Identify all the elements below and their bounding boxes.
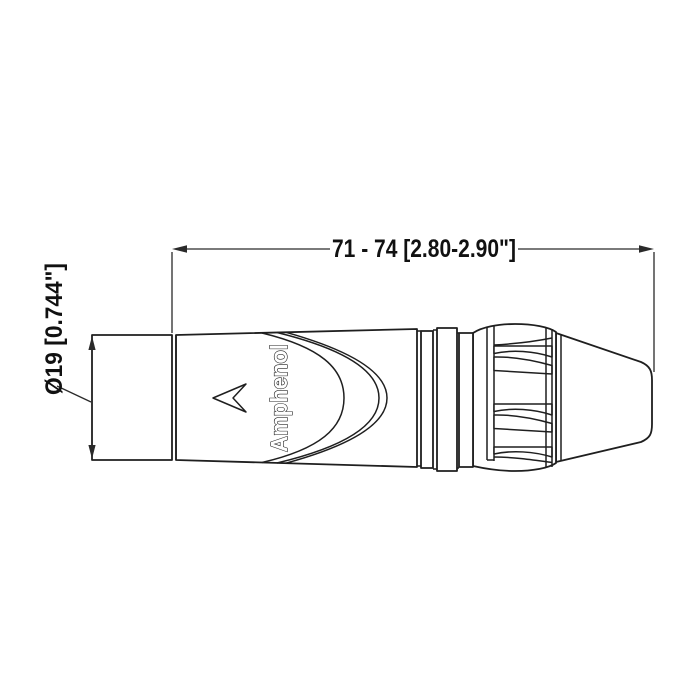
boot-collar xyxy=(459,333,473,467)
diameter-dimension: Ø19 [0.744"] xyxy=(41,263,96,459)
main-shell-body xyxy=(176,329,417,467)
brand-logo-text: Amphenol xyxy=(266,344,292,452)
length-arrowhead-left xyxy=(172,245,187,253)
connector-technical-drawing: Amphenol 71 - 74 [2.80-2.90"] Ø19 [0.744… xyxy=(0,0,700,700)
ring-groove-2 xyxy=(437,328,457,471)
front-barrel xyxy=(92,335,172,460)
ring-grooves xyxy=(417,328,473,471)
length-dimension-label: 71 - 74 [2.80-2.90"] xyxy=(332,235,516,263)
length-arrowhead-right xyxy=(639,245,654,253)
diameter-dimension-label: Ø19 [0.744"] xyxy=(41,263,68,395)
boot-tip xyxy=(556,333,652,462)
drawing-canvas: Amphenol 71 - 74 [2.80-2.90"] Ø19 [0.744… xyxy=(0,0,700,700)
ring-groove-1 xyxy=(421,331,433,468)
